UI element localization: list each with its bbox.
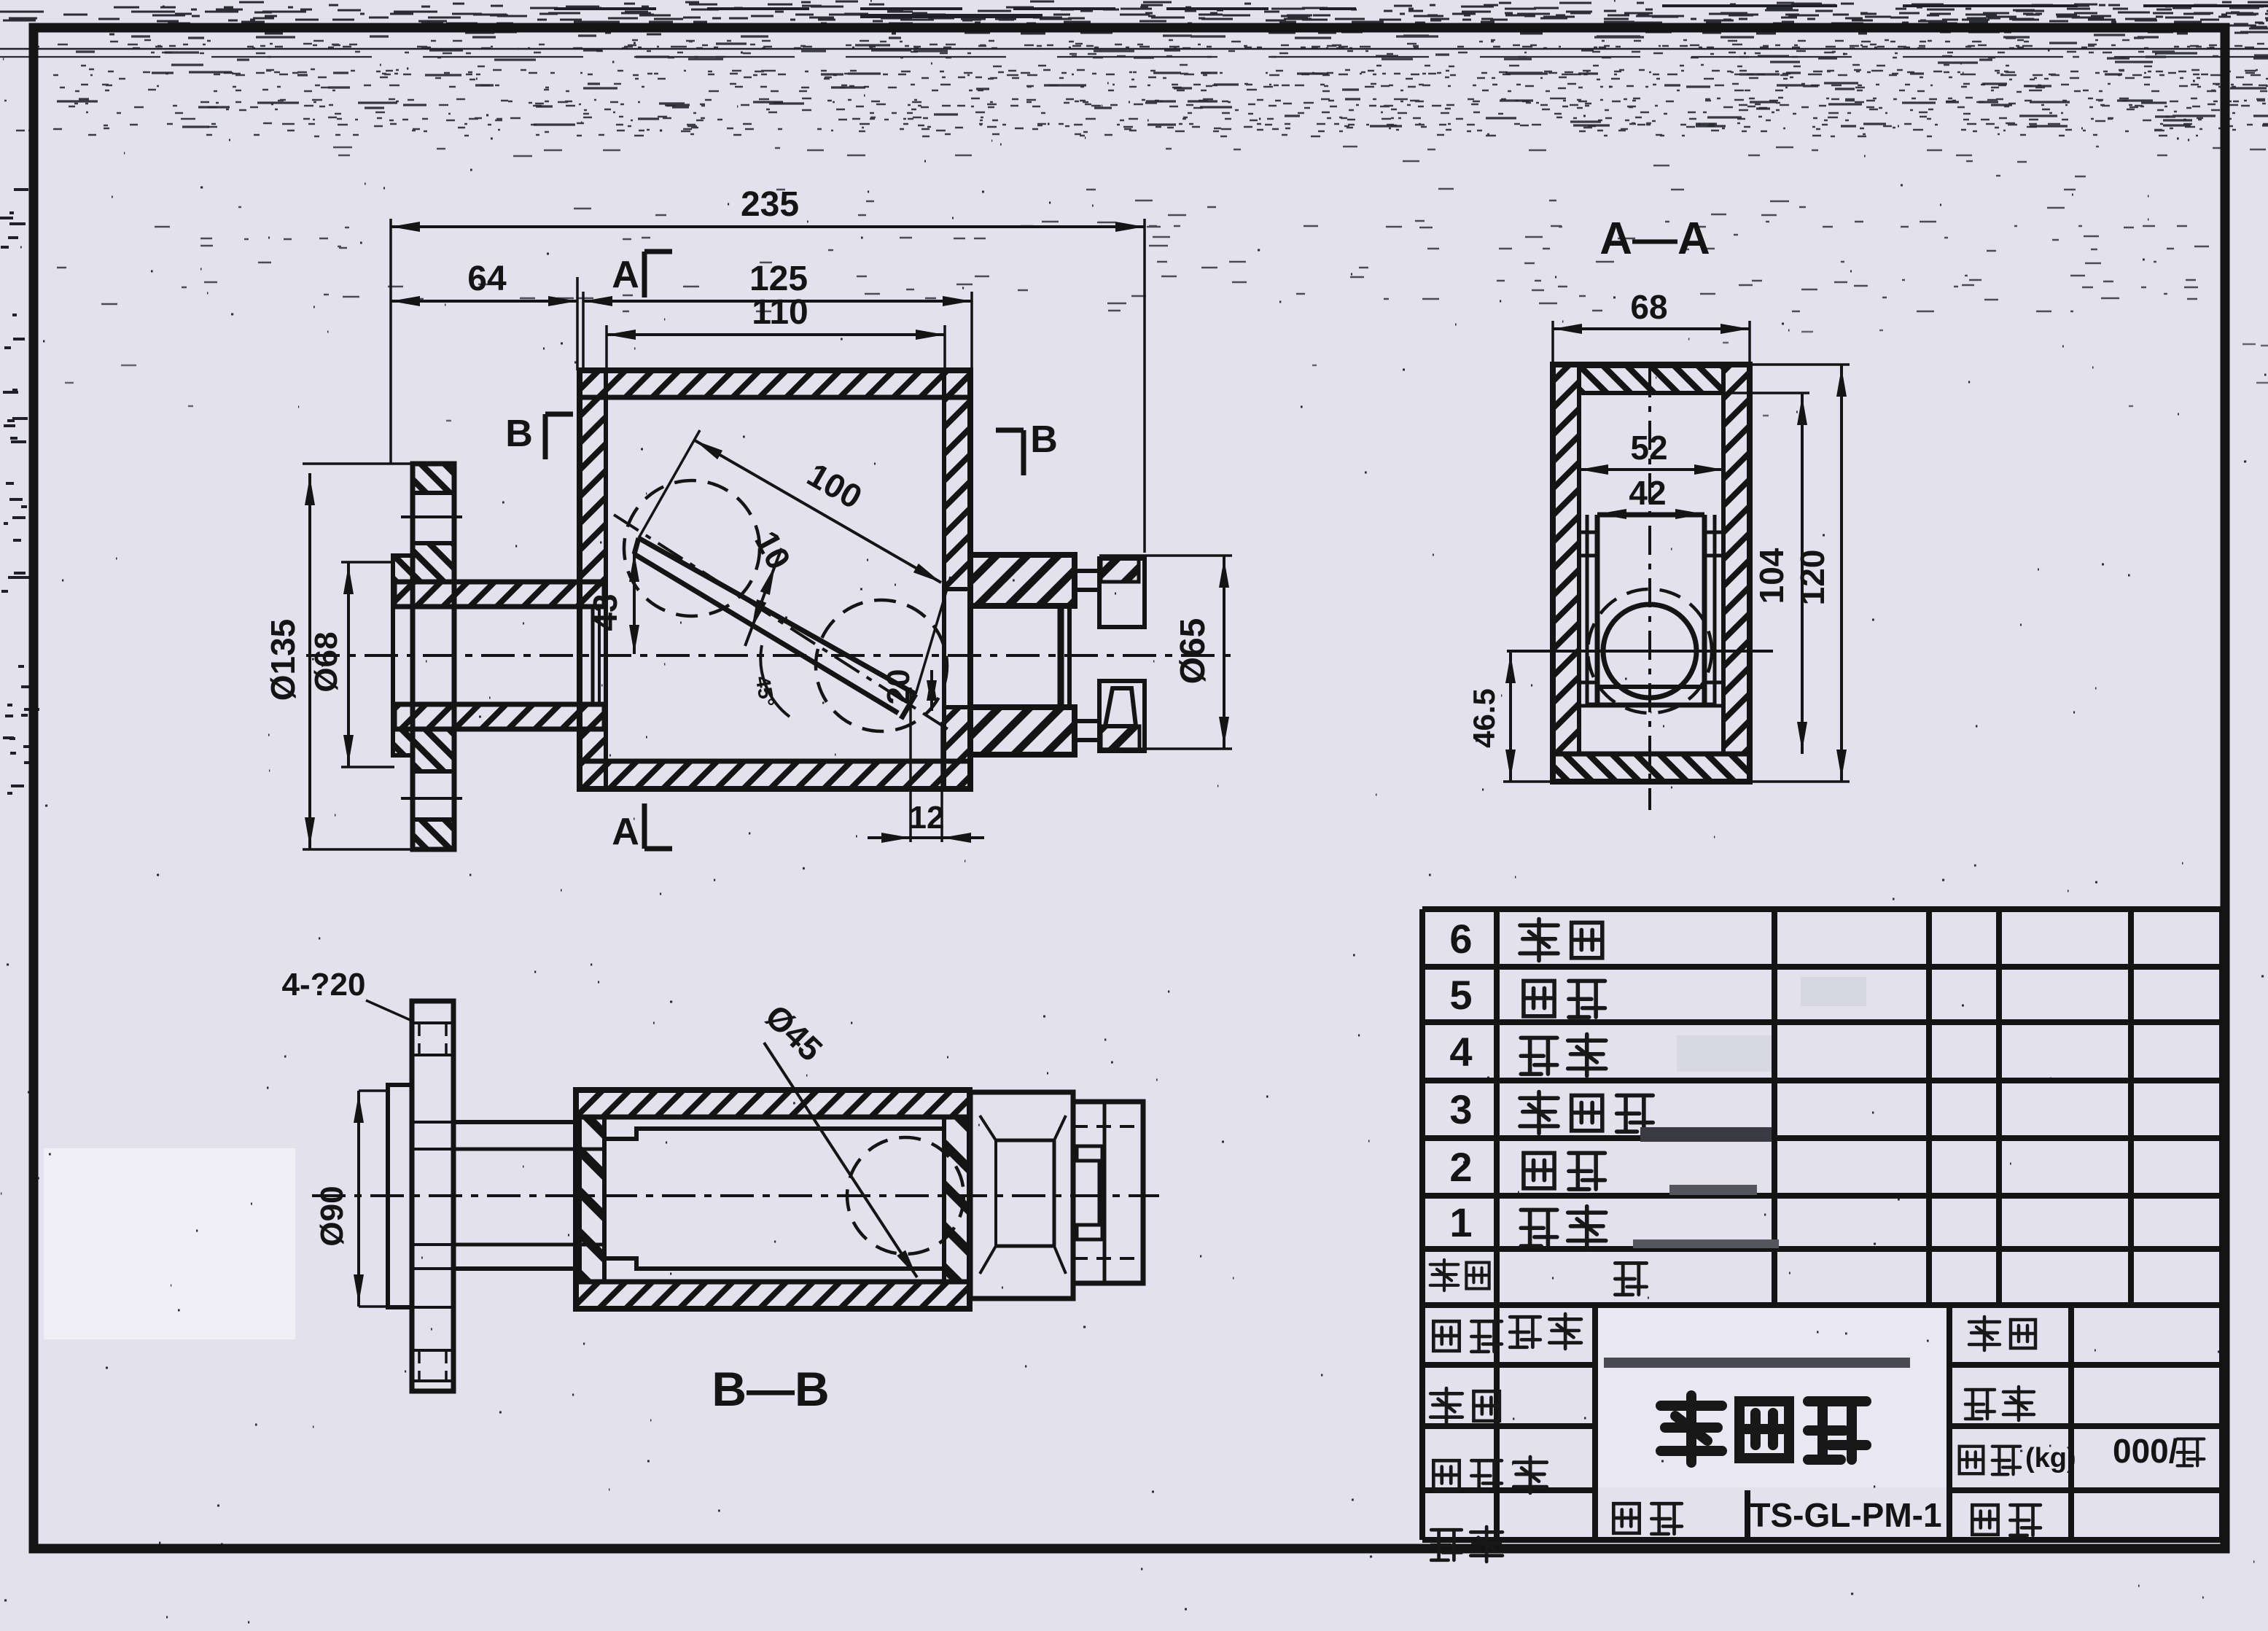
svg-text:Ø68: Ø68 [308,631,344,692]
svg-text:000/: 000/ [2113,1432,2178,1470]
svg-text:1: 1 [1449,1199,1472,1245]
svg-text:A: A [612,254,639,296]
svg-text:6: 6 [1449,916,1472,962]
svg-text:A: A [612,811,639,853]
svg-text:235: 235 [741,185,799,224]
svg-text:5: 5 [1449,972,1472,1018]
svg-text:42: 42 [1629,474,1666,512]
svg-text:B: B [505,413,533,455]
svg-text:Ø90: Ø90 [314,1186,350,1246]
svg-text:3: 3 [1449,1086,1472,1132]
svg-text:2: 2 [1449,1144,1472,1190]
svg-text:110: 110 [752,293,808,332]
svg-text:46.5: 46.5 [1467,688,1501,748]
svg-text:64: 64 [467,260,507,298]
svg-text:4: 4 [1449,1029,1472,1075]
svg-text:52: 52 [1630,429,1667,467]
svg-text:120: 120 [1793,550,1831,606]
svg-text:B: B [1030,419,1058,461]
svg-text:Ø135: Ø135 [264,619,302,701]
svg-text:68: 68 [1630,288,1667,326]
svg-text:12: 12 [909,800,945,836]
svg-text:B—B: B—B [712,1362,829,1416]
svg-text:A—A: A—A [1599,214,1710,264]
svg-text:43: 43 [586,593,624,631]
svg-text:Ø65: Ø65 [1174,618,1212,685]
svg-text:104: 104 [1753,548,1790,604]
svg-text:4-?20: 4-?20 [282,967,366,1003]
svg-text:TS-GL-PM-1: TS-GL-PM-1 [1750,1496,1941,1534]
svg-text:(kg): (kg) [2025,1443,2076,1474]
